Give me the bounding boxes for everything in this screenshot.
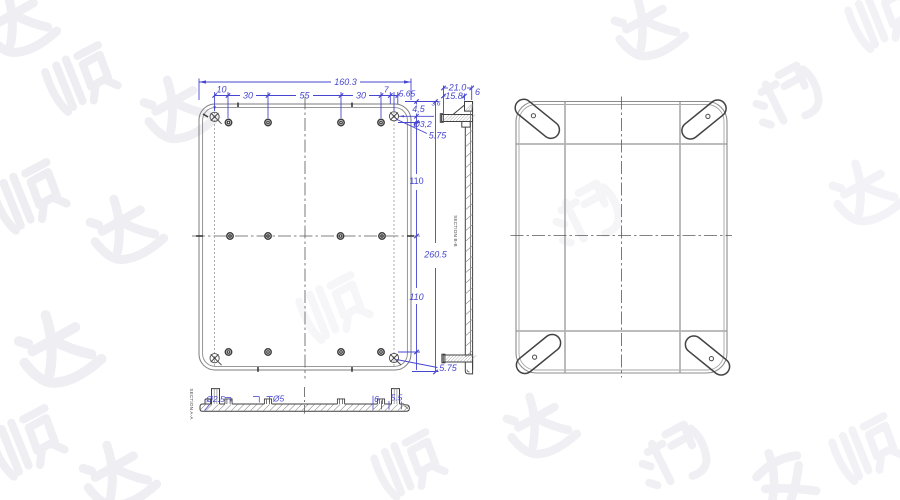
svg-text:260.5: 260.5 <box>423 250 448 260</box>
svg-text:110: 110 <box>409 176 423 186</box>
svg-text:7: 7 <box>384 85 389 95</box>
svg-text:4,5: 4,5 <box>412 104 426 114</box>
svg-text:15.8: 15.8 <box>445 91 463 101</box>
svg-text:110: 110 <box>409 292 423 302</box>
svg-text:6: 6 <box>374 394 379 404</box>
svg-text:Ø2.5: Ø2.5 <box>205 394 225 404</box>
svg-text:6: 6 <box>475 87 480 97</box>
svg-text:5.65: 5.65 <box>399 89 416 99</box>
svg-text:30: 30 <box>356 91 366 101</box>
svg-text:5.75: 5.75 <box>439 363 458 373</box>
svg-text:Ø3,2: Ø3,2 <box>412 119 432 129</box>
svg-text:55: 55 <box>299 91 310 101</box>
svg-text:SECTION A-A: SECTION A-A <box>189 388 194 420</box>
svg-text:Ø5: Ø5 <box>272 394 285 404</box>
svg-text:160.3: 160.3 <box>334 77 357 87</box>
svg-text:5.75: 5.75 <box>429 131 448 141</box>
svg-text:10: 10 <box>216 85 226 95</box>
svg-text:5.5: 5.5 <box>391 392 403 402</box>
svg-text:3.6: 3.6 <box>431 101 440 108</box>
svg-text:SECTION B-B: SECTION B-B <box>453 215 458 247</box>
svg-text:30: 30 <box>243 91 253 101</box>
